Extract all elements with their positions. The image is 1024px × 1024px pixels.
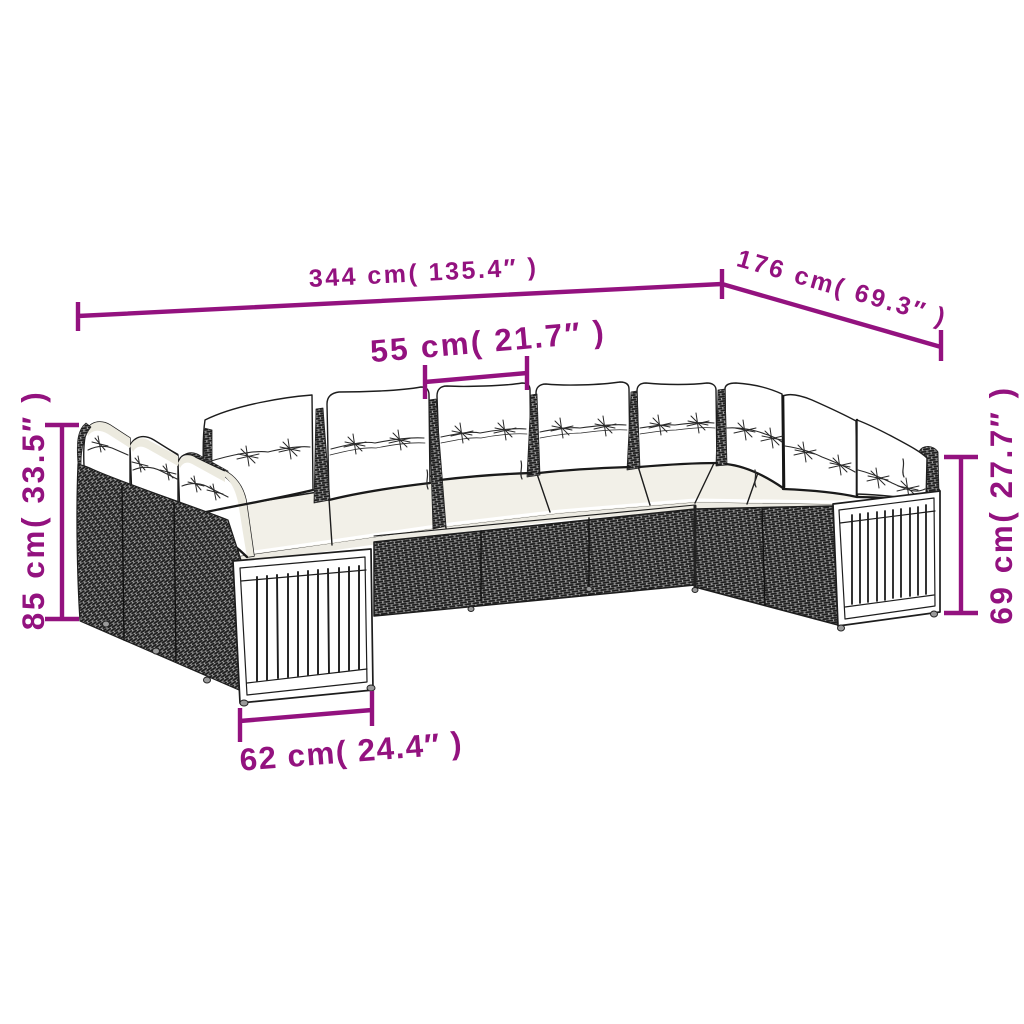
svg-text:85 cm( 33.5″ ): 85 cm( 33.5″ ) [15,390,51,631]
svg-text:69 cm( 27.7″ ): 69 cm( 27.7″ ) [983,385,1019,624]
